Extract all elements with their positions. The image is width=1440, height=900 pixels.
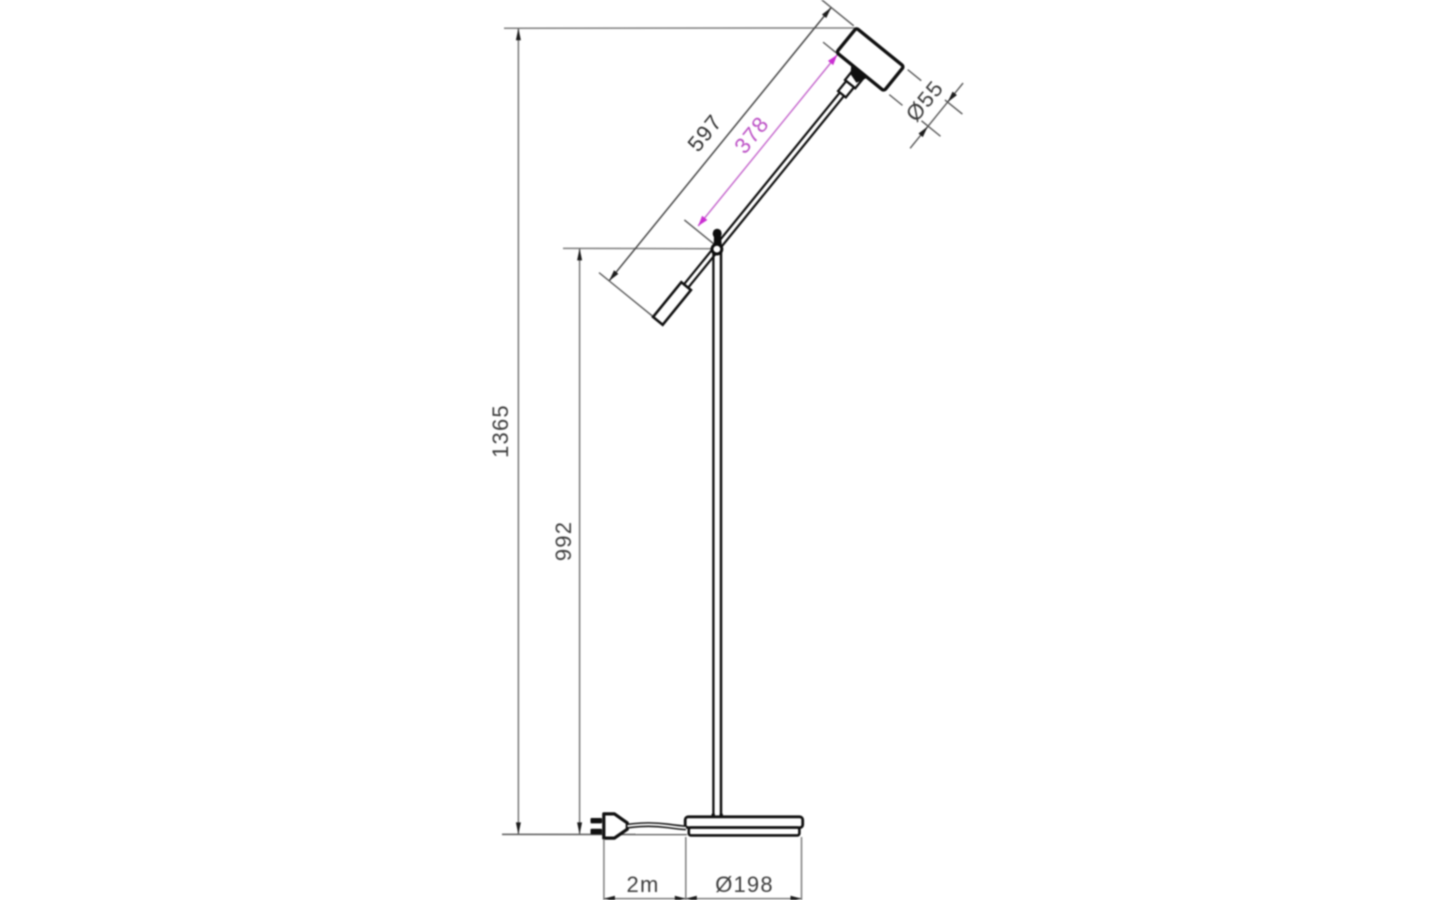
svg-text:2m: 2m [627,872,660,897]
svg-text:Ø198: Ø198 [715,872,774,897]
svg-text:1365: 1365 [488,404,513,458]
svg-text:992: 992 [551,521,576,561]
